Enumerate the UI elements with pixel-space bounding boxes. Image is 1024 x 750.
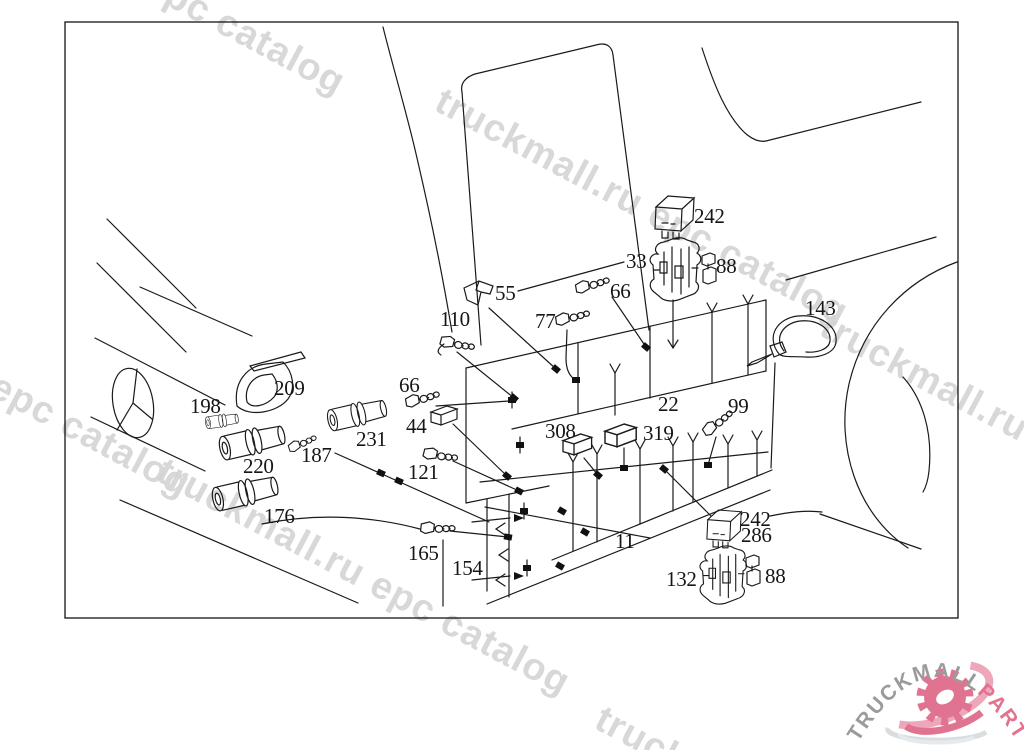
mercedes-star bbox=[107, 365, 159, 441]
relay-socket-33-icon bbox=[650, 238, 701, 301]
connector-77-icon bbox=[555, 309, 590, 326]
side-window-right bbox=[613, 55, 649, 330]
wheel-arch-inner bbox=[903, 377, 930, 492]
leader-lines bbox=[262, 262, 822, 606]
wheel-arch-outer bbox=[845, 262, 957, 548]
diagram-frame bbox=[65, 22, 958, 618]
clip-209-icon bbox=[236, 352, 305, 412]
part-icons bbox=[205, 196, 837, 604]
logo-text: TRUCKMALLPARTS bbox=[0, 0, 1024, 745]
connector-319-icon bbox=[605, 424, 636, 447]
relay-242-bottom-icon bbox=[707, 510, 741, 548]
harness-lower-wires bbox=[573, 440, 757, 551]
connector-66-top-icon bbox=[575, 276, 611, 294]
connector-44-icon bbox=[431, 406, 457, 425]
connector-198-icon bbox=[205, 412, 239, 429]
connector-308-icon bbox=[563, 434, 592, 455]
b-pillar-line bbox=[702, 48, 921, 141]
connector-176-icon bbox=[210, 473, 280, 513]
front-body-lines bbox=[91, 219, 358, 603]
parts-catalog-page: truckmall.ru epc catalogtruckmall.ru epc… bbox=[0, 0, 1024, 750]
screw-187-icon bbox=[287, 434, 318, 453]
connector-231-icon bbox=[325, 396, 388, 432]
connector-165-icon bbox=[420, 521, 455, 536]
fuse-88-top-icon bbox=[702, 253, 716, 284]
fuse-88-bottom-icon bbox=[746, 555, 760, 586]
door-crease-line bbox=[786, 237, 936, 280]
logo-text-secondary: PARTS bbox=[0, 0, 1024, 744]
lower-body-line bbox=[820, 514, 921, 549]
connector-220-icon bbox=[217, 422, 287, 462]
connector-66-left-icon bbox=[405, 390, 441, 408]
connector-99-icon bbox=[701, 409, 736, 437]
parts-diagram-canvas: TRUCKMALLPARTS bbox=[0, 0, 1024, 750]
connector-121-icon bbox=[423, 446, 459, 466]
wire-beads bbox=[376, 342, 712, 580]
harness-assembly bbox=[466, 295, 772, 604]
a-pillar-line bbox=[383, 27, 452, 332]
side-window-left bbox=[462, 92, 481, 345]
side-window-top bbox=[462, 44, 613, 92]
connector-55-icon bbox=[464, 281, 493, 305]
relay-socket-132-icon bbox=[700, 546, 747, 604]
cable-tie-143-icon bbox=[747, 316, 836, 366]
relay-242-top-icon bbox=[655, 196, 694, 239]
brand-logo: TRUCKMALLPARTS bbox=[0, 0, 1024, 746]
